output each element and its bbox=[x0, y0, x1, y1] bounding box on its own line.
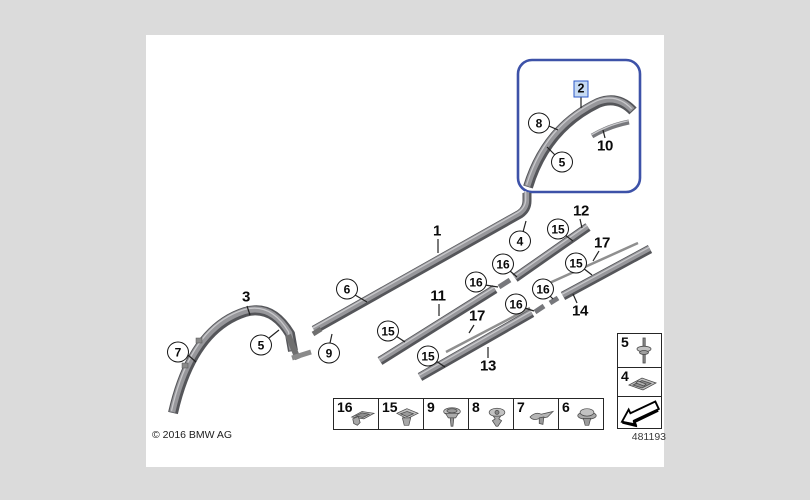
callout-circle-9[interactable]: 9 bbox=[318, 343, 340, 364]
callout-circle-15-d[interactable]: 15 bbox=[565, 253, 587, 274]
side-legend-column: 5 4 bbox=[617, 334, 662, 429]
legend-cell-9[interactable]: 9 bbox=[423, 398, 469, 430]
legend-cell-8-number: 8 bbox=[472, 400, 480, 414]
legend-cell-6-number: 6 bbox=[562, 400, 570, 414]
callout-circle-7[interactable]: 7 bbox=[167, 342, 189, 363]
legend-cell-8[interactable]: 8 bbox=[468, 398, 514, 430]
callout-circle-6[interactable]: 6 bbox=[336, 279, 358, 300]
expansion-rivet-icon bbox=[436, 405, 468, 429]
diagram-canvas: 2 1 3 11 17 13 12 17 14 10 7 5 9 6 15 15… bbox=[146, 35, 664, 467]
copyright-text: © 2016 BMW AG bbox=[152, 429, 232, 441]
part-label-11[interactable]: 11 bbox=[430, 289, 445, 304]
pad-clip-icon bbox=[391, 405, 423, 429]
part-label-12[interactable]: 12 bbox=[573, 204, 589, 219]
legend-cell-6[interactable]: 6 bbox=[558, 398, 604, 430]
callout-circle-8[interactable]: 8 bbox=[528, 113, 550, 134]
part-label-10[interactable]: 10 bbox=[597, 139, 613, 154]
callout-circle-16-a[interactable]: 16 bbox=[465, 272, 487, 293]
legend-cell-16[interactable]: 16 bbox=[333, 398, 379, 430]
clip-piece-16-b[interactable] bbox=[535, 306, 544, 312]
pin-washer-icon bbox=[627, 335, 661, 367]
legend-cell-15[interactable]: 15 bbox=[378, 398, 424, 430]
part-label-17-front[interactable]: 17 bbox=[469, 309, 485, 324]
part-label-3[interactable]: 3 bbox=[242, 290, 250, 305]
diagram-number: 481193 bbox=[632, 431, 666, 443]
callout-circle-16-b[interactable]: 16 bbox=[492, 254, 514, 275]
part-label-17-rear[interactable]: 17 bbox=[594, 236, 610, 251]
callout-circle-5-rear[interactable]: 5 bbox=[551, 152, 573, 173]
flat-clip-icon bbox=[346, 405, 378, 429]
callout-circle-15-c[interactable]: 15 bbox=[547, 219, 569, 240]
callout-circle-15-b[interactable]: 15 bbox=[417, 346, 439, 367]
rear-wheel-arch-trim-part-2[interactable] bbox=[527, 98, 633, 187]
legend-cell-9-number: 9 bbox=[427, 400, 435, 414]
clip-piece-16-c[interactable] bbox=[550, 298, 558, 303]
legend-cell-7[interactable]: 7 bbox=[513, 398, 559, 430]
legend-cell-5[interactable]: 5 bbox=[617, 333, 662, 368]
legend-cell-4[interactable]: 4 bbox=[617, 367, 662, 397]
legend-cell-direction[interactable] bbox=[617, 396, 662, 429]
fastener-legend-row: 16 15 9 bbox=[333, 398, 604, 430]
front-wheel-arch-trim-part-3[interactable] bbox=[172, 308, 312, 413]
callout-circle-4[interactable]: 4 bbox=[509, 231, 531, 252]
callout-circle-16-d[interactable]: 16 bbox=[532, 279, 554, 300]
part-label-1[interactable]: 1 bbox=[433, 224, 441, 239]
callout-circle-5-front[interactable]: 5 bbox=[250, 335, 272, 356]
part-label-14[interactable]: 14 bbox=[572, 304, 588, 319]
arrow-bottom-left-icon bbox=[618, 397, 661, 428]
bracket-clip-icon bbox=[623, 370, 661, 396]
callout-circle-15-a[interactable]: 15 bbox=[377, 321, 399, 342]
wing-clip-icon bbox=[526, 405, 558, 429]
legend-cell-7-number: 7 bbox=[517, 400, 525, 414]
clip-piece-16-a[interactable] bbox=[499, 280, 510, 287]
grommet-pin-icon bbox=[481, 405, 513, 429]
grommet-icon bbox=[571, 405, 603, 429]
callout-circle-16-c[interactable]: 16 bbox=[505, 294, 527, 315]
trim-strip-part-10[interactable] bbox=[592, 121, 630, 136]
selected-part-label-2[interactable]: 2 bbox=[574, 81, 589, 98]
part-label-13[interactable]: 13 bbox=[480, 359, 496, 374]
